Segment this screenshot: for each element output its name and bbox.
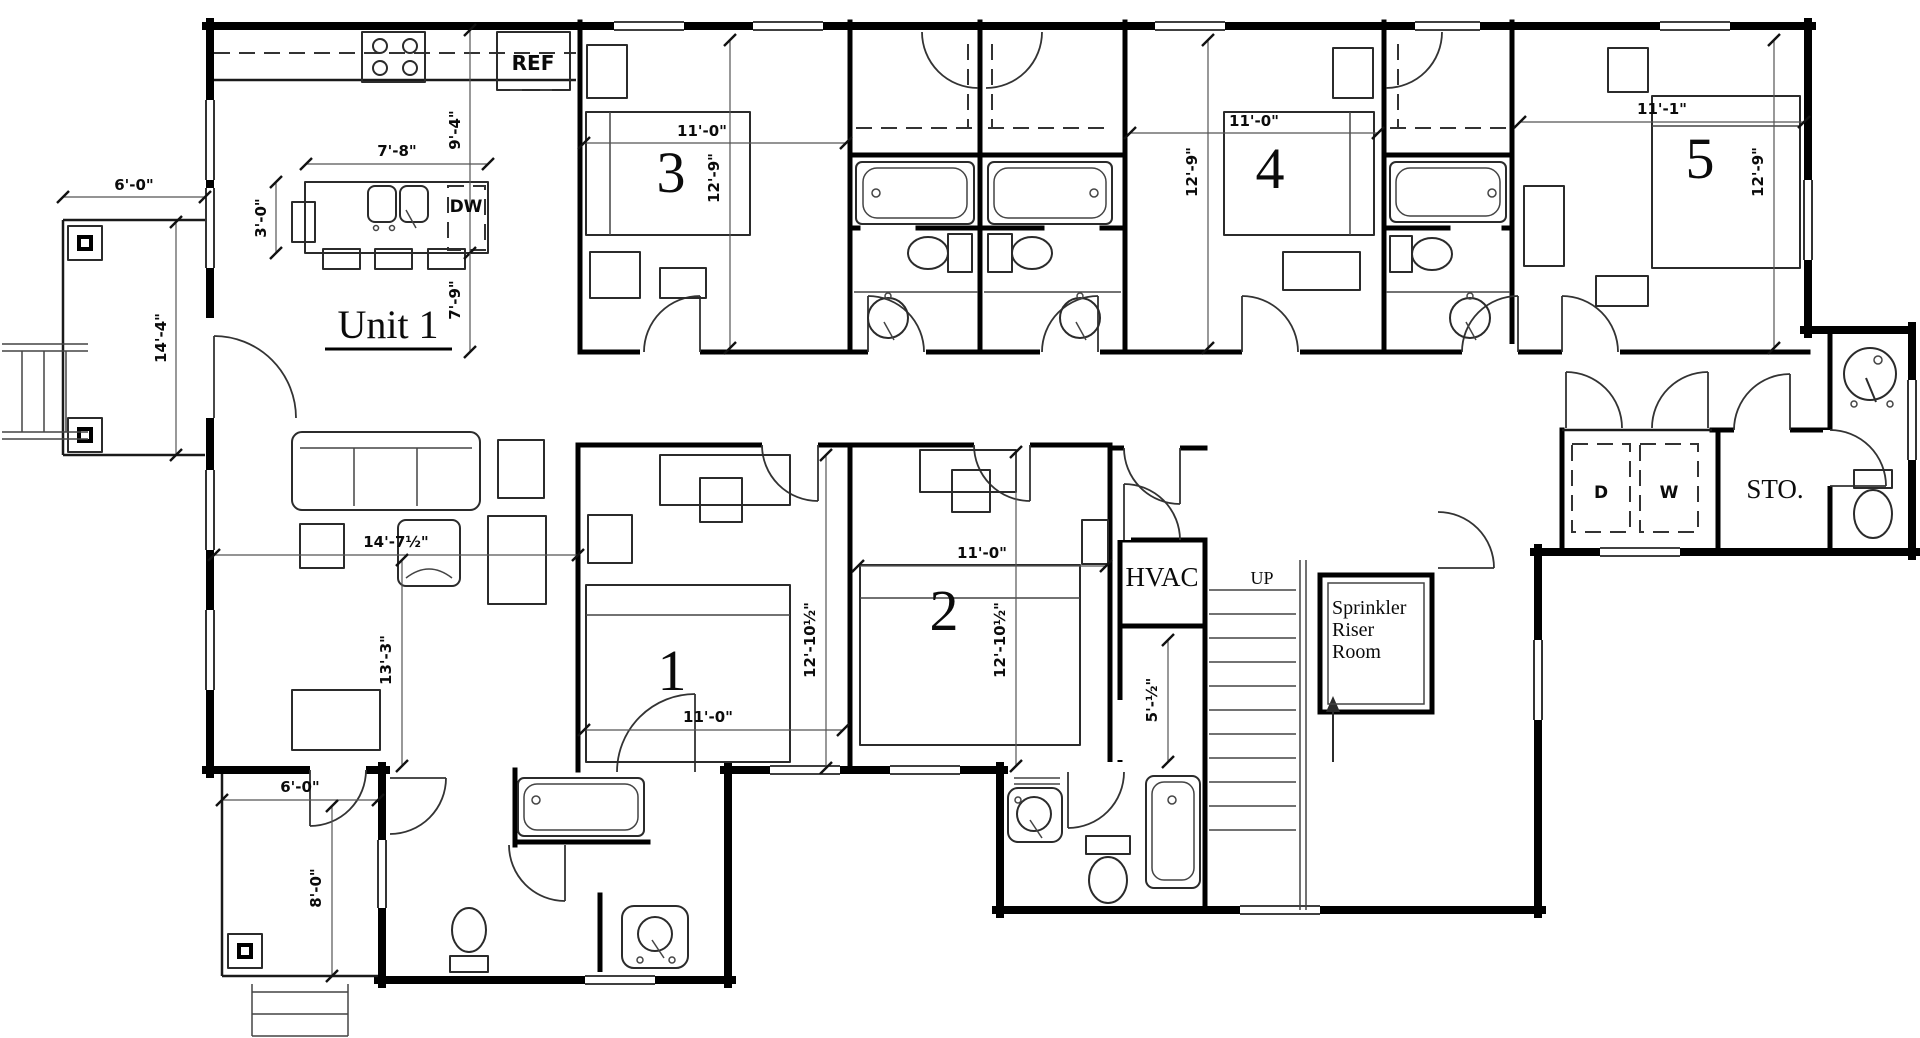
dim-closet-width: 5'-½": [1143, 678, 1161, 723]
dim-island-depth: 3'-0": [252, 198, 270, 238]
stove: [362, 32, 425, 82]
ottoman: [300, 524, 344, 568]
floor-plan: 6'-0" 14'-4" 7'-8" 3'-0" 9'-4" 7'-9" 11'…: [0, 0, 1920, 1038]
nightstand: [587, 45, 627, 98]
bathtub: [1146, 776, 1200, 888]
sink: [622, 906, 688, 968]
toilet: [988, 234, 1052, 272]
label-refrigerator: REF: [512, 51, 555, 75]
bed: [586, 585, 790, 762]
nightstand: [588, 515, 632, 563]
label-dryer: D: [1594, 483, 1608, 503]
side-table: [498, 440, 544, 498]
nightstand: [1608, 48, 1648, 92]
bedroom-4: [1224, 48, 1374, 290]
room-number-3: 3: [657, 140, 686, 205]
bathtub: [856, 162, 974, 224]
label-washer: W: [1660, 483, 1679, 503]
dim-front-porch-width: 6'-0": [114, 176, 154, 194]
dim-bedroom5-depth: 12'-9": [1749, 147, 1767, 197]
dim-bedroom5-width: 11'-1": [1637, 100, 1687, 118]
rear-porch: [222, 774, 378, 1036]
dresser: [590, 252, 640, 298]
dim-bedroom4-width: 11'-0": [1229, 112, 1279, 130]
label-storage: STO.: [1746, 474, 1803, 504]
bathtub: [518, 778, 644, 836]
toilet: [1390, 236, 1452, 272]
dim-living-depth: 13'-3": [377, 635, 395, 685]
chair: [700, 478, 742, 522]
bed: [860, 565, 1080, 745]
sink: [854, 292, 978, 340]
dim-bedroom2-depth: 12'-10½": [991, 602, 1009, 678]
toilet: [908, 234, 972, 272]
dresser: [1524, 186, 1564, 266]
label-sprinkler-1: Sprinkler: [1332, 597, 1407, 619]
table: [660, 268, 706, 298]
desk: [660, 455, 790, 505]
sofa: [292, 432, 480, 510]
dim-front-porch-depth: 14'-4": [152, 313, 170, 363]
front-porch: [2, 220, 205, 455]
chair: [292, 202, 315, 242]
room-number-1: 1: [658, 638, 687, 703]
annotations: 6'-0" 14'-4" 7'-8" 3'-0" 9'-4" 7'-9" 11'…: [114, 51, 1803, 908]
room-number-5: 5: [1686, 126, 1715, 191]
label-dishwasher: DW: [450, 197, 483, 217]
bathroom-center-right: [984, 44, 1121, 340]
accent-chair: [488, 516, 546, 604]
dishwasher: [448, 186, 485, 250]
floor-plan-canvas: 6'-0" 14'-4" 7'-8" 3'-0" 9'-4" 7'-9" 11'…: [0, 0, 1920, 1038]
dim-island-width: 7'-8": [377, 142, 417, 160]
round-sink: [1844, 348, 1896, 407]
bathroom-4: [1386, 44, 1510, 340]
unit-title: Unit 1: [337, 302, 438, 347]
sink: [1008, 788, 1062, 842]
dim-bedroom2-width: 11'-0": [957, 544, 1007, 562]
sink: [984, 292, 1121, 340]
nightstand: [1082, 520, 1108, 564]
exterior-walls: [206, 22, 1916, 984]
dresser: [1283, 252, 1360, 290]
room-number-2: 2: [930, 578, 959, 643]
corner-bathroom: [1844, 348, 1896, 538]
kitchen-island: [292, 182, 488, 269]
bathroom-bottom-center: [1008, 776, 1200, 903]
nightstand: [1333, 48, 1373, 98]
dim-bedroom1-width: 11'-0": [683, 708, 733, 726]
up-arrow: [1326, 696, 1340, 762]
bathroom-bottom-left: [450, 778, 688, 972]
porch-steps: [252, 984, 348, 1036]
porch-steps: [2, 344, 88, 439]
dim-bedroom3-depth: 12'-9": [705, 153, 723, 203]
label-sprinkler-3: Room: [1332, 641, 1381, 663]
toilet: [1086, 836, 1130, 903]
bathtub: [1390, 162, 1506, 222]
room-number-4: 4: [1256, 136, 1285, 201]
table: [1596, 276, 1648, 306]
living-room: [292, 432, 546, 750]
porch-post: [68, 226, 102, 260]
bedroom-2: [860, 450, 1108, 745]
dim-bedroom4-depth: 12'-9": [1183, 147, 1201, 197]
dim-kitchen-depth: 9'-4": [446, 110, 464, 150]
cabinet: [292, 690, 380, 750]
dim-living-width: 14'-7½": [363, 533, 428, 551]
dim-bedroom3-width: 11'-0": [677, 122, 727, 140]
laundry: [1562, 430, 1712, 532]
bathtub: [988, 162, 1112, 224]
bed: [1224, 112, 1374, 235]
dim-rear-porch-depth: 8'-0": [307, 868, 325, 908]
toilet: [450, 908, 488, 972]
label-sprinkler-2: Riser: [1332, 619, 1375, 641]
dim-bedroom1-depth: 12'-10½": [801, 602, 819, 678]
dim-kitchen-to-wall: 7'-9": [446, 280, 464, 320]
label-up: UP: [1250, 568, 1273, 588]
porch-post: [228, 934, 262, 968]
armchair: [398, 520, 460, 586]
sink: [1386, 292, 1510, 340]
label-hvac: HVAC: [1125, 562, 1198, 592]
porch-post: [68, 418, 102, 452]
dim-rear-porch-width: 6'-0": [280, 778, 320, 796]
